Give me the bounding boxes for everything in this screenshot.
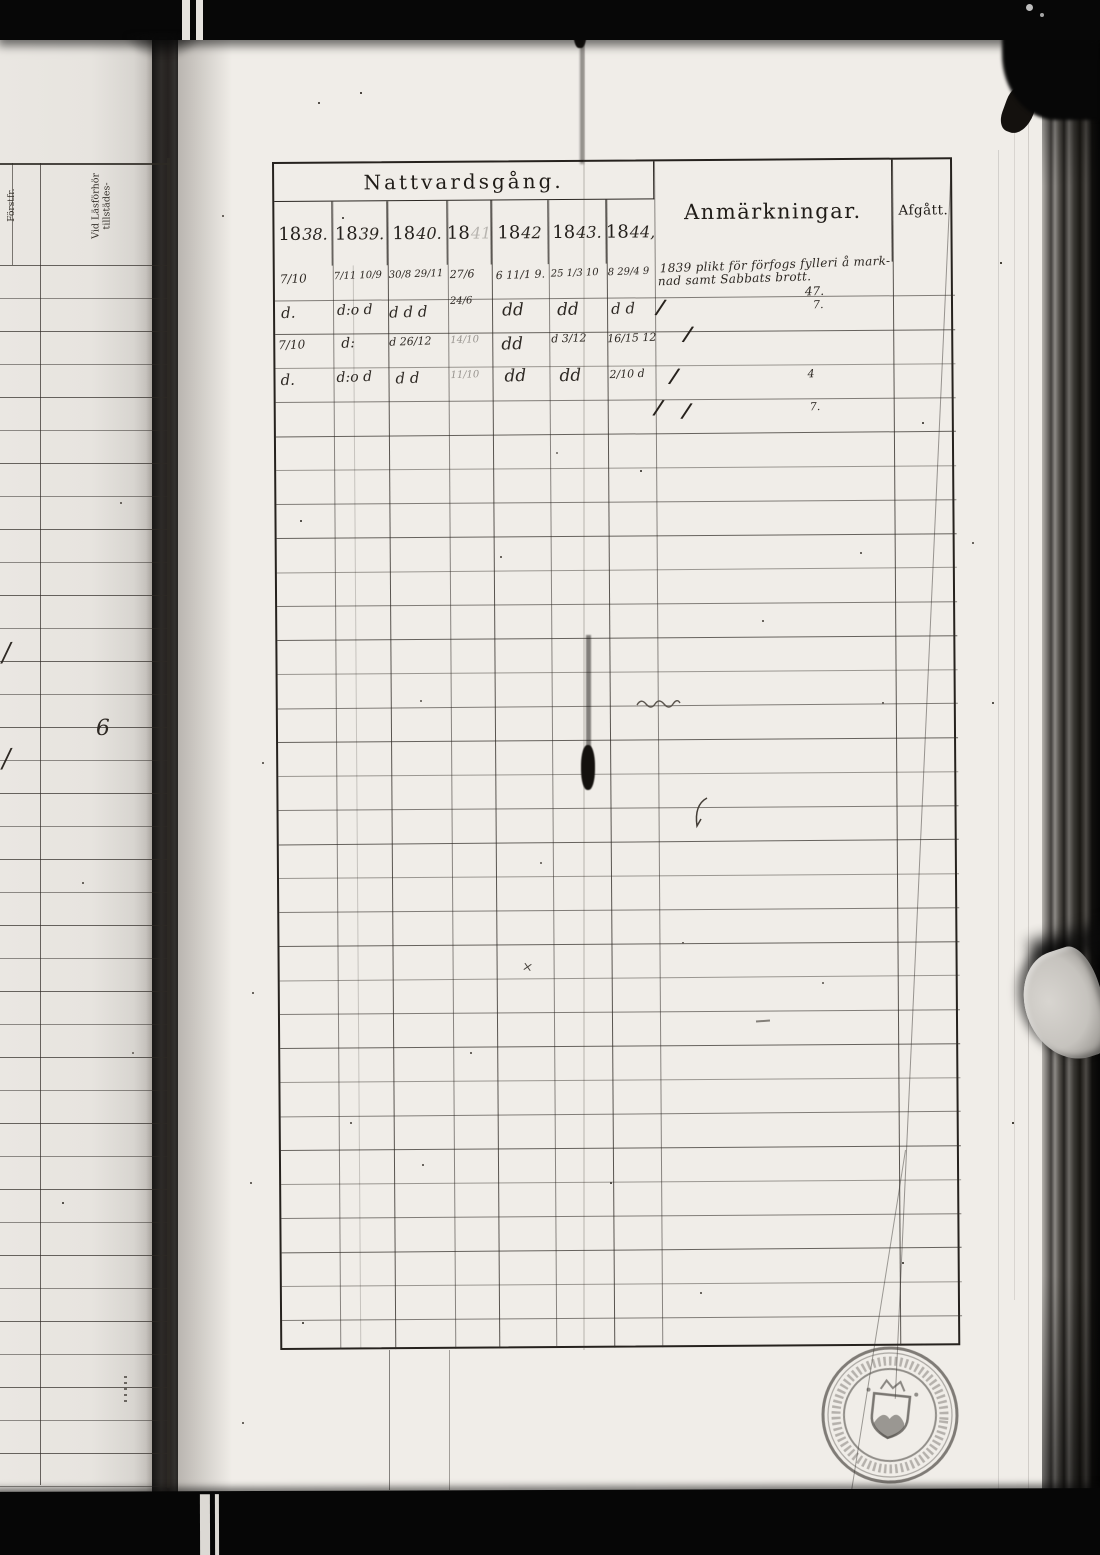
handwriting-entry: 27/6 [450,267,475,281]
left-page-grid-line [0,1453,168,1454]
year-script: 41 [471,223,491,242]
year-printed: 18 [335,223,358,244]
left-page-grid-line [40,163,41,1485]
year-header-1842: 1842 [491,200,548,264]
year-header-1843: 1843. [548,200,606,264]
year-printed: 18 [606,221,629,242]
left-page-grid-line [0,1057,168,1058]
handwriting-entry: d:o d [336,369,372,386]
handwriting-entry: d 3/12 [551,331,587,345]
grid-line-horizontal [280,1077,960,1083]
left-page-grid-line [0,925,168,926]
year-printed: 18 [552,221,575,242]
page-edge-streaks [1042,0,1100,1555]
grid-line-artifact [353,265,362,1349]
left-page-grid-line [0,595,168,596]
grid-line-horizontal [279,941,959,947]
left-page-partial [0,30,152,1505]
grid-line-horizontal [281,1111,961,1118]
left-page-grid-line [0,1156,168,1157]
left-page-grid-line [0,1024,168,1025]
stamp-crown [881,1380,906,1391]
film-slit [200,1494,210,1555]
handwriting-entry: 2/10 d [609,367,645,381]
film-speck [1026,4,1033,11]
left-page-grid-line [0,859,168,860]
year-header-1838: 1838. [274,202,332,266]
year-script: 38. [302,224,328,243]
year-script: 39. [359,224,385,243]
left-page-grid-line [0,628,168,629]
left-page-grid-line [0,1189,168,1190]
fold-line-below-table [449,1350,450,1490]
year-printed: 18 [497,222,520,243]
grid-line-horizontal [279,805,959,811]
grid-line-vertical [892,160,901,1346]
grid-line-horizontal [276,465,956,471]
left-page-grid-line [0,1222,168,1223]
left-page-pen-mark: / [2,638,12,668]
fold-line-below-table [389,1350,390,1490]
year-script: 44, [630,222,656,241]
handwriting-entry: d 26/12 [389,334,432,348]
grid-line-horizontal [276,397,956,403]
left-page-grid-line [0,1486,168,1487]
handwriting-entry: dd [502,300,524,321]
left-page-rotated-header: Förstfr. [7,165,17,245]
grid-line-horizontal [281,1179,961,1185]
grid-line-horizontal [280,1043,960,1049]
grid-line-horizontal [282,1315,962,1321]
handwriting-entry: 6 11/1 9. [496,267,546,282]
ledger-film-scan: Nattvardsgång. Anmärkningar. Afgått. 183… [0,0,1100,1555]
left-page-grid-line [0,1387,168,1388]
grid-line-horizontal [278,669,958,675]
grid-line-horizontal [278,737,958,743]
left-page-grid-line [0,463,168,464]
left-page-grid-line [0,265,168,266]
left-page-grid-line [0,760,168,761]
handwriting-entry: dd [557,300,579,321]
handwriting-entry: 30/8 29/11 [389,268,444,281]
left-page-grid-line [0,1420,168,1421]
year-header-1840: 1840. [387,201,447,265]
handwriting-entry: d d [395,369,420,388]
film-speck [1040,13,1044,17]
film-slit [196,0,203,40]
year-header-1844: 1844, [606,199,654,263]
year-printed: 18 [447,222,470,243]
year-header-1841: 1841 [447,200,491,264]
left-page-grid-line [0,562,168,563]
handwriting-entry: 24/6 [450,295,473,307]
left-page-grid-line [0,1090,168,1091]
stamp-mountain [873,1413,905,1441]
left-page-grid-line [0,163,170,165]
grid-line-horizontal [276,499,956,505]
remarks-header: Anmärkningar. [654,160,893,264]
hook-mark [692,796,710,832]
grid-line-horizontal [280,1009,960,1015]
left-page-grid-line [0,793,168,794]
page-edge-line [998,150,999,1490]
grid-line-horizontal [277,567,957,574]
left-page-rotated-header: Vid Läsförhör tillstädes- [92,158,114,253]
left-page-grid-line [0,1354,168,1355]
handwriting-entry: 8 29/4 9 [608,266,650,278]
handwriting-entry: d. [280,371,295,389]
handwriting-entry: 4 [807,367,814,380]
handwriting-entry: 14/10 [450,334,479,346]
left-page-grid-line [0,694,168,695]
left-page-pen-mark: 6 [96,716,111,741]
handwriting-entry: dd [559,366,581,387]
handwriting-entry: 16/15 12 [607,331,657,346]
year-printed: 18 [278,223,301,244]
left-page-grid-line [0,727,168,728]
handwriting-entry: 47. [805,284,825,299]
left-page-grid-line [0,529,168,530]
grid-line-horizontal [276,431,956,438]
left-page-grid-line [0,958,168,959]
year-script: 42 [521,223,541,242]
grid-line-horizontal [279,839,959,846]
grid-line-horizontal [279,907,959,913]
year-script: 40. [416,223,442,242]
left-page-grid-line [0,331,168,332]
left-page-grid-line [0,661,168,662]
page-crease [583,40,585,1350]
left-page-grid-line [0,364,168,365]
handwriting-entry: d: [341,335,355,351]
left-page-grid-line [0,430,168,431]
left-page-grid-line [0,1255,168,1256]
handwriting-entry: dd [501,334,523,355]
page-edge-line [1028,60,1029,1490]
left-page-grid-line [0,496,168,497]
left-page-grid-line [0,1321,168,1322]
grid-line-horizontal [280,975,960,982]
grid-line-horizontal [277,601,957,607]
grid-line-horizontal [278,771,958,777]
scribble-mark [636,698,682,710]
handwriting-entry: 7. [810,400,821,413]
handwriting-entry: / [683,321,700,346]
communion-table: Nattvardsgång. Anmärkningar. Afgått. 183… [272,157,960,1350]
handwriting-entry: / [656,295,673,320]
handwriting-entry: 7. [813,298,824,311]
left-page-grid-line [0,1123,168,1124]
grid-line-horizontal [277,533,957,539]
left-page-grid-line [0,1288,168,1289]
left-page-grid-line [0,397,168,398]
tiny-margin-marks [124,1376,127,1402]
year-printed: 18 [392,223,415,244]
handwriting-entry: 7/11 10/9 [334,270,382,283]
handwriting-entry: / [669,363,686,388]
handwriting-entry: 7/10 [280,271,307,286]
left-page-grid-line [0,298,168,299]
left-page-pen-mark: / [2,744,12,774]
handwriting-entry: 11/10 [450,369,479,381]
left-page-grid-line [0,892,168,893]
handwriting-entry: d. [281,304,296,322]
year-script: 43. [576,222,602,241]
film-slit [182,0,190,40]
left-page-grid-line [0,991,168,992]
film-slit [215,1494,219,1555]
left-page-grid-line [0,826,168,827]
handwriting-entry: dd [504,366,526,387]
grid-line-horizontal [282,1247,962,1254]
grid-line-horizontal [281,1213,961,1219]
archive-stamp-seal [808,1333,973,1498]
handwriting-entry: / / [653,395,698,424]
departed-header: Afgått. [892,159,955,261]
handwriting-entry: d d d [389,302,428,321]
handwriting-entry: d d [611,299,636,318]
page-edge-line [1014,100,1015,1300]
table-title: Nattvardsgång. [274,161,654,202]
illegible-ring-text [831,1356,950,1475]
grid-line-horizontal [279,873,959,879]
grid-line-horizontal [282,1281,962,1287]
ink-blob [581,745,595,790]
handwriting-entry: 7/10 [278,337,305,352]
handwriting-entry: d:o d [337,302,373,319]
grid-line-horizontal [278,703,958,710]
handwriting-entry: 25 1/3 10 [551,267,599,280]
bottom-film-border [0,1488,1100,1555]
grid-line-horizontal [281,1145,961,1151]
grid-line-horizontal [277,635,957,641]
top-border-shadow-dip [124,34,202,60]
year-header-1839: 1839. [332,201,387,265]
